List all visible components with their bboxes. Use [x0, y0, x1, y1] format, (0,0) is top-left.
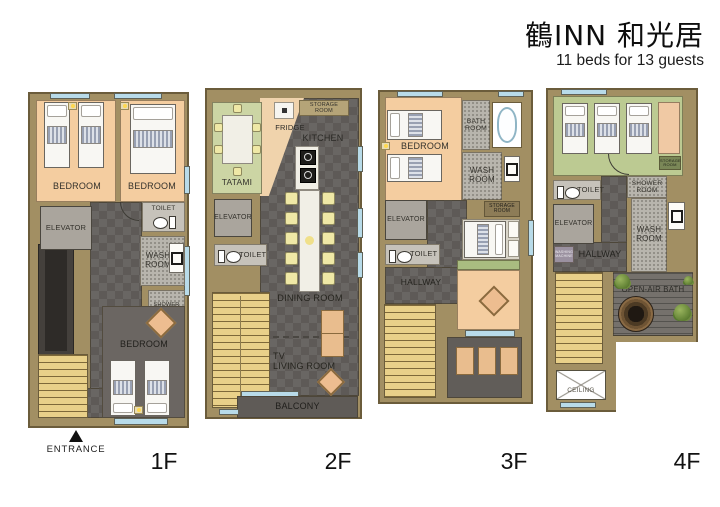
dining-chair: [285, 252, 298, 265]
dining-chair: [285, 232, 298, 245]
toilet-icon: [389, 250, 412, 263]
room-label: ELEVATOR: [46, 224, 86, 232]
green-floor: [457, 260, 520, 270]
bathtub: [492, 102, 522, 148]
bed-blanket: [477, 224, 488, 255]
room-label: STORAGE ROOM: [660, 159, 680, 168]
bed: [44, 102, 70, 168]
bed-foot: [424, 113, 439, 137]
bed-foot: [147, 363, 167, 379]
room-label: TOILET: [239, 251, 266, 259]
room-label: STORAGE ROOM: [489, 204, 515, 215]
toilet-icon: [218, 250, 241, 263]
window: [50, 93, 90, 99]
window: [114, 93, 162, 99]
bed: [387, 110, 442, 140]
bed-foot: [424, 157, 439, 179]
room-label: FRIDGE: [269, 124, 311, 132]
floor-label-2f: 2F: [312, 448, 364, 475]
bed-sheet: [490, 224, 494, 255]
tatami-table: [222, 115, 253, 164]
void-shaft: [38, 244, 74, 356]
lamp-icon: [68, 102, 77, 110]
storage-room: STORAGE ROOM: [299, 100, 349, 116]
bed-foot: [597, 138, 617, 151]
bed: [130, 104, 176, 174]
fridge-mark: [282, 108, 287, 113]
elevator: ELEVATOR: [214, 199, 252, 237]
floor-plan-4f: STORAGE ROOM TOILET ELEVATOR SHOWER ROOM…: [546, 88, 698, 412]
room-label: HALLWAY: [574, 250, 626, 260]
toilet-room: TOILET: [142, 202, 185, 232]
bed-sheet: [597, 117, 617, 122]
bed-pillow: [81, 105, 101, 117]
floor-plan-1f: BEDROOM BEDROOM ELEVATOR TOILET WASH ROO…: [28, 92, 189, 428]
room-label: CEILING: [557, 387, 605, 394]
sink-icon: [668, 202, 685, 230]
stairs: [384, 304, 436, 398]
elevator: ELEVATOR: [40, 206, 92, 250]
bed-foot: [467, 224, 476, 255]
elevator: ELEVATOR: [385, 200, 427, 240]
balcony: BALCONY: [237, 396, 358, 418]
window: [219, 409, 239, 415]
bed-blanket: [133, 130, 173, 149]
bed-pillow: [133, 107, 173, 120]
bed-pillow: [113, 403, 133, 414]
room-label: BALCONY: [275, 402, 319, 412]
seat-cushion: [252, 123, 261, 132]
lamp-icon: [134, 406, 143, 414]
stove-icon: [300, 150, 316, 165]
lamp-icon: [120, 102, 129, 110]
elevator: ELEVATOR: [553, 204, 594, 244]
bed-foot: [133, 149, 173, 171]
wash-room: WASH ROOM: [140, 236, 185, 286]
wash-room: WASH ROOM: [462, 152, 502, 200]
shower-room: SHOWER ROOM: [627, 176, 667, 198]
seat-cushion: [252, 145, 261, 154]
floor-plan-3f: BEDROOM BATH ROOM WASH ROOM ELEVATOR TOI…: [378, 90, 533, 404]
bed-sheet: [113, 396, 133, 402]
room-label: BEDROOM: [120, 182, 184, 192]
plant-icon: [615, 274, 630, 289]
bed-sheet: [565, 117, 585, 122]
bed-blanket: [81, 126, 101, 144]
bed: [110, 360, 136, 416]
dining-chair: [285, 272, 298, 285]
pendant-light-icon: [305, 236, 314, 245]
plant-icon: [684, 276, 693, 285]
bed: [464, 221, 506, 258]
page-title: 鶴INN 和光居: [525, 14, 704, 54]
stove-icon: [300, 168, 316, 183]
room-label: BEDROOM: [104, 340, 184, 350]
seat-cushion: [233, 104, 242, 113]
seat-cushion: [214, 123, 223, 132]
bed: [626, 103, 652, 154]
window: [184, 166, 190, 194]
window: [357, 146, 363, 172]
fridge: [274, 102, 294, 119]
floor-label-4f: 4F: [661, 448, 713, 475]
room-label: WASHING MACHINE: [555, 251, 573, 259]
bench-cushion: [456, 347, 474, 375]
bed: [78, 102, 104, 168]
window: [465, 330, 515, 337]
room-label: TOILET: [410, 250, 437, 258]
floor-label-3f: 3F: [488, 448, 540, 475]
bed-sheet: [629, 117, 649, 122]
sink-icon: [169, 243, 184, 273]
window: [528, 220, 534, 256]
bed-sheet: [47, 118, 67, 125]
wash-room: WASH ROOM: [631, 198, 667, 272]
entrance-label: ENTRANCE: [33, 445, 119, 455]
bed-blanket: [408, 157, 423, 179]
sink-icon: [504, 156, 520, 182]
bath-tub-icon: [618, 296, 654, 332]
bed-pillow: [47, 105, 67, 117]
bed-foot: [629, 138, 649, 151]
bench-cushion: [500, 347, 518, 375]
closet: [508, 240, 519, 257]
floor-label-1f: 1F: [138, 448, 190, 475]
bed: [594, 103, 620, 154]
room-label: DINING ROOM: [271, 293, 349, 303]
bed-pillow: [495, 224, 503, 255]
bed-sheet: [401, 113, 407, 137]
toilet-icon: [557, 186, 580, 199]
floor-plan-2f: TATAMI STORAGE ROOM FRIDGE KITCHEN ELEVA…: [205, 88, 362, 419]
bed-sheet: [401, 157, 407, 179]
room-label: TATAMI: [213, 178, 261, 187]
dining-chair: [285, 192, 298, 205]
bed-pillow: [147, 403, 167, 414]
stair-divider: [240, 296, 241, 404]
bed-pillow: [390, 157, 400, 179]
closet: [508, 221, 519, 238]
room-label: BATH ROOM: [463, 118, 489, 133]
bed-pillow: [565, 106, 585, 116]
bed-blanket: [629, 123, 649, 137]
bed-pillow: [629, 106, 649, 116]
dining-chair: [322, 192, 335, 205]
bed-blanket: [147, 380, 167, 395]
toilet-room: TOILET: [553, 180, 601, 200]
bench-cushion: [478, 347, 496, 375]
seat-cushion: [233, 167, 242, 176]
bath-room: BATH ROOM: [462, 100, 490, 150]
plant-icon: [674, 304, 691, 321]
window: [114, 418, 168, 425]
bed-sheet: [133, 121, 173, 129]
washing-machine: WASHING MACHINE: [554, 246, 574, 263]
window: [498, 91, 524, 97]
dining-chair: [322, 252, 335, 265]
bed-sheet: [81, 118, 101, 125]
bed: [387, 154, 442, 182]
ceiling-opening: CEILING: [556, 370, 606, 400]
storage-room: STORAGE ROOM: [659, 156, 681, 170]
closet: [658, 102, 680, 154]
room-label: BEDROOM: [38, 182, 116, 192]
bed-sheet: [147, 396, 167, 402]
window: [357, 252, 363, 278]
room-label: STORAGE ROOM: [308, 102, 340, 114]
room-label: WASH ROOM: [466, 167, 498, 185]
bed-blanket: [597, 123, 617, 137]
bed: [562, 103, 588, 154]
room-label: SHOWER ROOM: [631, 180, 663, 194]
sofa-seam: [322, 333, 343, 334]
toilet-room: TOILET: [385, 244, 440, 265]
room-label: ELEVATOR: [555, 220, 593, 228]
outside-mask: [616, 342, 700, 414]
room-label: HALLWAY: [392, 278, 450, 287]
room-label: TOILET: [143, 205, 184, 212]
lamp-icon: [381, 142, 390, 150]
room-label: TOILET: [577, 186, 604, 194]
dining-chair: [322, 232, 335, 245]
storage-room: STORAGE ROOM: [484, 201, 520, 217]
bed-blanket: [47, 126, 67, 144]
room-label: ELEVATOR: [214, 214, 252, 222]
bathtub-icon: [497, 107, 517, 143]
dining-chair: [322, 212, 335, 225]
bed-pillow: [597, 106, 617, 116]
bed-blanket: [565, 123, 585, 137]
window: [357, 208, 363, 238]
floor-plan-poster: 鶴INN 和光居 11 beds for 13 guests BEDROOM B…: [0, 0, 720, 507]
room-label: KITCHEN: [295, 134, 351, 144]
room-label: WASH ROOM: [634, 226, 664, 244]
page-subtitle: 11 beds for 13 guests: [556, 52, 704, 70]
bed: [144, 360, 170, 416]
room-label: BEDROOM: [388, 142, 462, 152]
bed-foot: [81, 145, 101, 165]
room-label: ELEVATOR: [387, 216, 425, 224]
dining-chair: [322, 272, 335, 285]
toilet-icon: [153, 216, 176, 229]
entrance-arrow-icon: [69, 430, 83, 442]
bed-foot: [113, 363, 133, 379]
bed-blanket: [408, 113, 423, 137]
window: [560, 402, 596, 408]
toilet-room: TOILET: [214, 244, 267, 266]
stairs: [555, 272, 603, 364]
seat-cushion: [214, 145, 223, 154]
bed-foot: [47, 145, 67, 165]
bed-blanket: [113, 380, 133, 395]
stairs: [38, 354, 88, 418]
dining-chair: [285, 212, 298, 225]
bed-foot: [565, 138, 585, 151]
bed-pillow: [390, 113, 400, 137]
window: [561, 89, 607, 95]
